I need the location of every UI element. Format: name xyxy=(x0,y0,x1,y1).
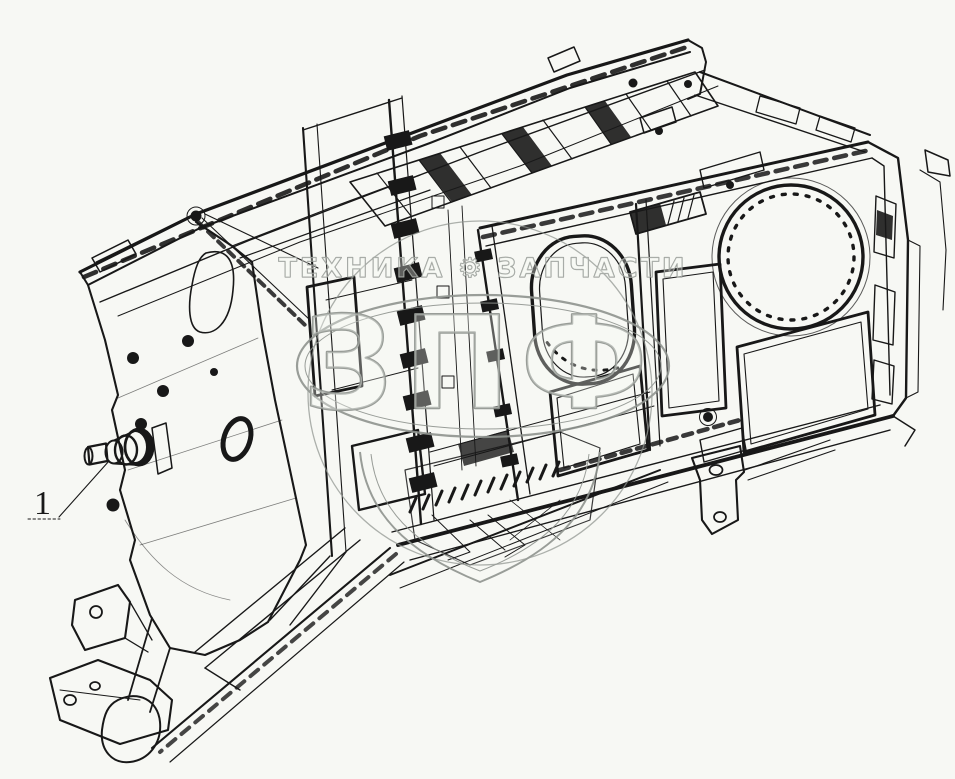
watermark-logo-text: ЗПФ xyxy=(303,290,658,439)
watermark-header-text: ТЕХНИКА ⚙ ЗАПЧАСТИ xyxy=(278,253,687,284)
callout-label-1: 1 xyxy=(34,485,51,522)
parts-catalog-page: 1 xyxy=(0,0,955,779)
parts-diagram: 1 xyxy=(0,0,955,779)
